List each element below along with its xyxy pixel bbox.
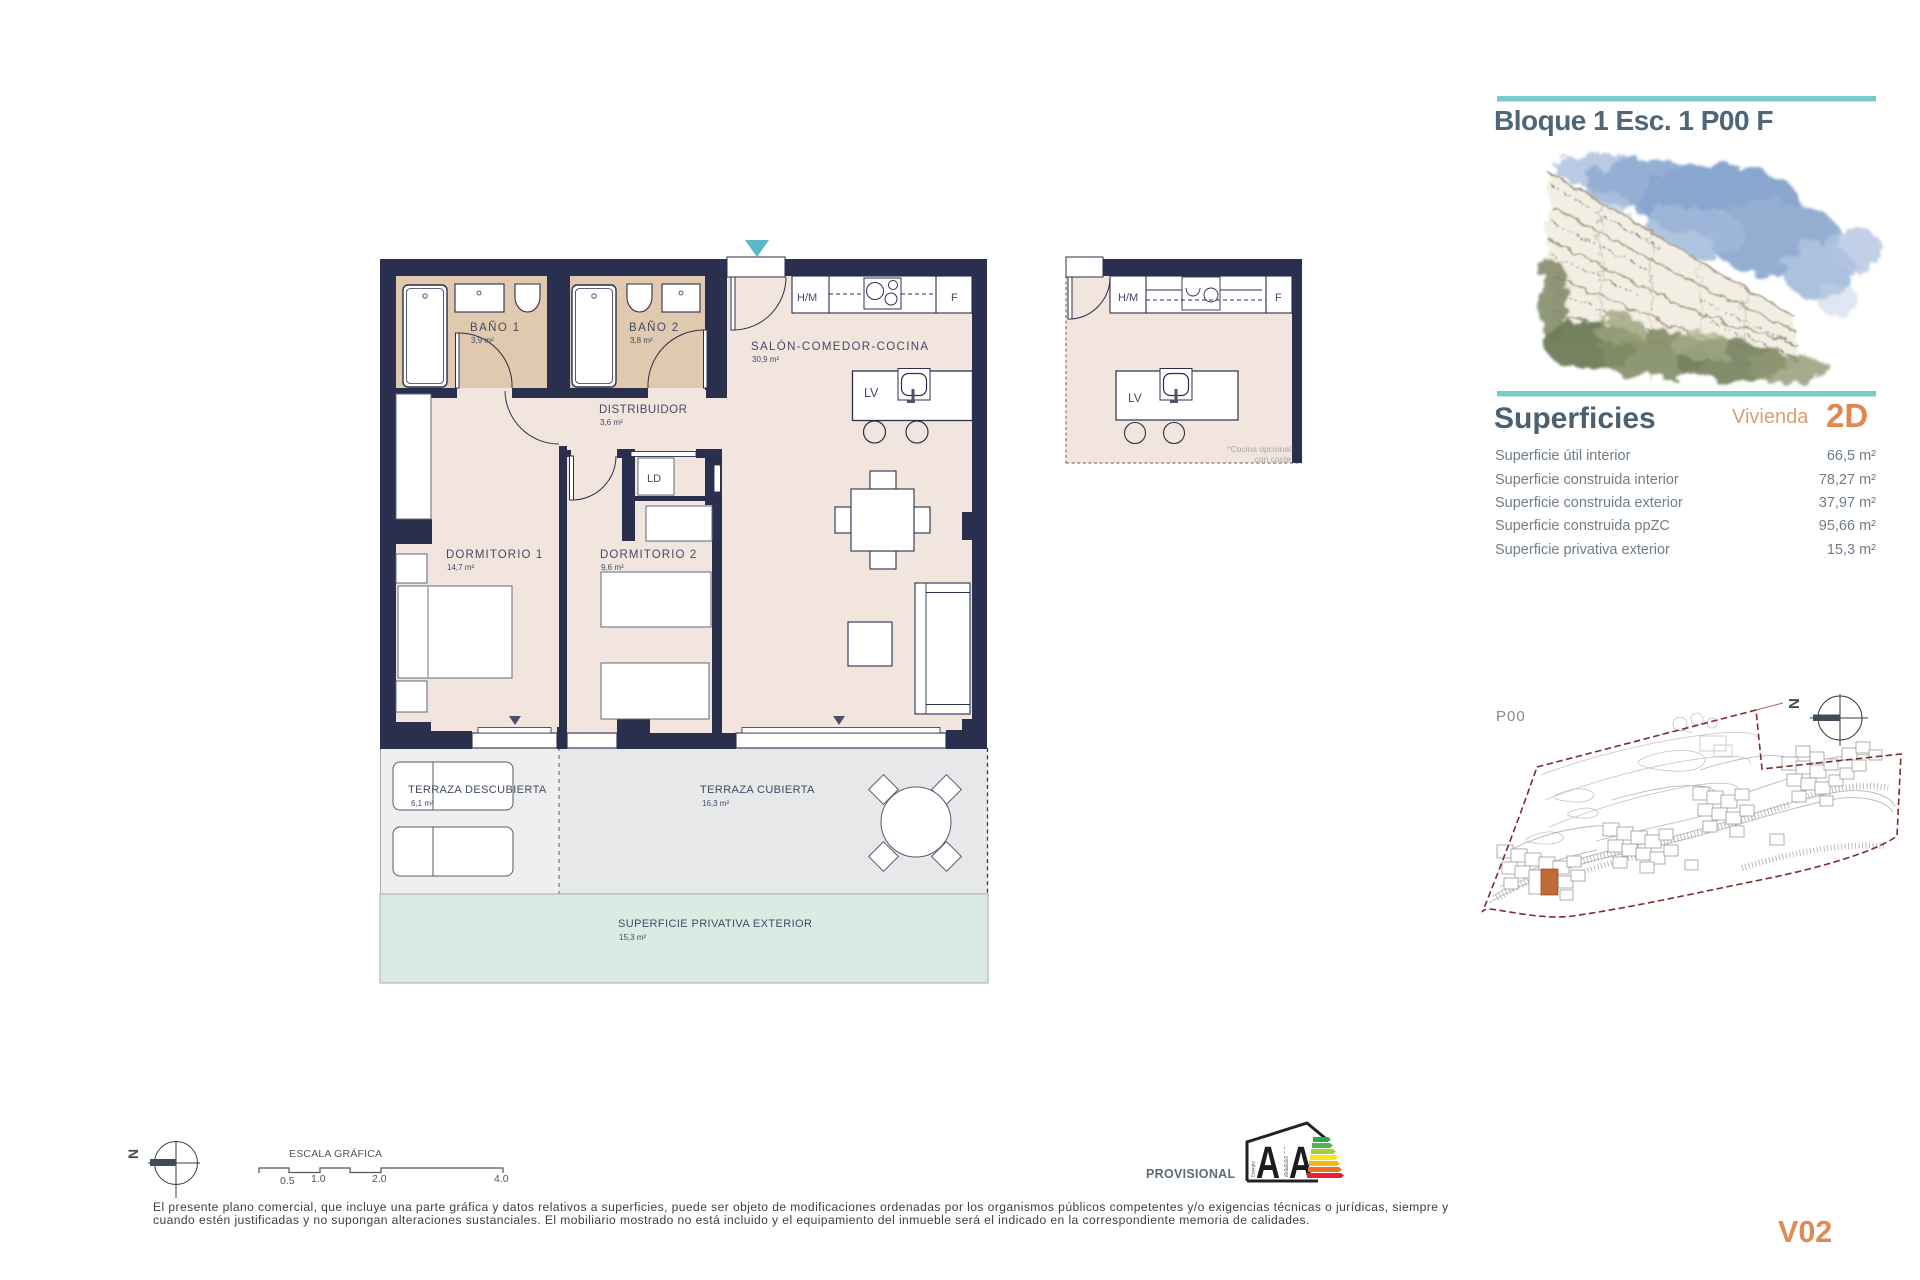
svg-text:A: A bbox=[1256, 1138, 1280, 1188]
svg-text:1.0: 1.0 bbox=[311, 1173, 326, 1185]
svg-text:LV: LV bbox=[1128, 391, 1142, 405]
svg-text:66,5 m²: 66,5 m² bbox=[1827, 448, 1876, 464]
svg-text:BAÑO 1: BAÑO 1 bbox=[470, 321, 521, 334]
svg-text:F: F bbox=[1275, 292, 1282, 304]
svg-text:N: N bbox=[1786, 698, 1803, 709]
svg-text:DORMITORIO 1: DORMITORIO 1 bbox=[446, 549, 543, 561]
svg-text:TERRAZA CUBIERTA: TERRAZA CUBIERTA bbox=[700, 784, 815, 796]
svg-text:Vivienda: Vivienda bbox=[1732, 406, 1809, 428]
svg-text:LD: LD bbox=[647, 473, 661, 485]
svg-text:H/M: H/M bbox=[797, 292, 817, 304]
svg-text:Superficies: Superficies bbox=[1494, 402, 1656, 435]
svg-text:3,8 m²: 3,8 m² bbox=[630, 336, 653, 345]
svg-text:H/M: H/M bbox=[1118, 292, 1138, 304]
svg-text:El presente plano comercial, q: El presente plano comercial, que incluye… bbox=[153, 1200, 1449, 1214]
svg-text:2.0: 2.0 bbox=[372, 1173, 387, 1185]
svg-text:Energía: Energía bbox=[1251, 1161, 1256, 1177]
svg-text:Superficie privativa exterior: Superficie privativa exterior bbox=[1495, 542, 1670, 558]
svg-text:15,3 m²: 15,3 m² bbox=[1827, 542, 1876, 558]
svg-text:DORMITORIO 2: DORMITORIO 2 bbox=[600, 549, 697, 561]
svg-text:P00: P00 bbox=[1496, 708, 1526, 725]
svg-text:BAÑO 2: BAÑO 2 bbox=[629, 321, 680, 334]
svg-text:Superficie útil interior: Superficie útil interior bbox=[1495, 448, 1631, 464]
svg-text:0.5: 0.5 bbox=[280, 1175, 295, 1187]
svg-text:2D: 2D bbox=[1826, 397, 1868, 434]
svg-text:cuando estén justificadas y no: cuando estén justificadas y no supongan … bbox=[153, 1213, 1310, 1227]
svg-text:Superficie construida interior: Superficie construida interior bbox=[1495, 472, 1679, 488]
svg-text:PROVISIONAL: PROVISIONAL bbox=[1146, 1167, 1235, 1181]
svg-text:*Cocina opcional: *Cocina opcional bbox=[1227, 444, 1291, 454]
svg-text:30,9 m²: 30,9 m² bbox=[752, 355, 779, 364]
svg-text:3,6 m²: 3,6 m² bbox=[600, 418, 623, 427]
svg-text:Superficie construida ppZC: Superficie construida ppZC bbox=[1495, 518, 1670, 534]
svg-text:Bloque 1 Esc. 1 P00 F: Bloque 1 Esc. 1 P00 F bbox=[1494, 105, 1773, 136]
svg-text:N: N bbox=[125, 1149, 141, 1159]
svg-text:Emisiones: Emisiones bbox=[1284, 1155, 1289, 1177]
svg-text:con coste: con coste bbox=[1255, 454, 1292, 464]
svg-text:15,3 m²: 15,3 m² bbox=[619, 933, 646, 942]
svg-text:78,27 m²: 78,27 m² bbox=[1819, 472, 1876, 488]
svg-text:14,7 m²: 14,7 m² bbox=[447, 563, 474, 572]
svg-text:LV: LV bbox=[864, 386, 879, 400]
svg-text:16,3 m²: 16,3 m² bbox=[702, 799, 729, 808]
svg-text:3,9 m²: 3,9 m² bbox=[471, 336, 494, 345]
svg-text:4.0: 4.0 bbox=[494, 1173, 509, 1185]
svg-text:TERRAZA DESCUBIERTA: TERRAZA DESCUBIERTA bbox=[408, 784, 547, 796]
svg-text:F: F bbox=[951, 292, 958, 304]
svg-text:DISTRIBUIDOR: DISTRIBUIDOR bbox=[599, 404, 687, 416]
svg-text:Superficie construida exterior: Superficie construida exterior bbox=[1495, 495, 1683, 511]
svg-text:SALÓN-COMEDOR-COCINA: SALÓN-COMEDOR-COCINA bbox=[751, 340, 929, 353]
svg-text:9,6 m²: 9,6 m² bbox=[601, 563, 624, 572]
svg-text:V02: V02 bbox=[1778, 1215, 1832, 1249]
svg-text:95,66 m²: 95,66 m² bbox=[1819, 518, 1876, 534]
svg-text:37,97 m²: 37,97 m² bbox=[1819, 495, 1876, 511]
svg-text:SUPERFICIE PRIVATIVA EXTERIOR: SUPERFICIE PRIVATIVA EXTERIOR bbox=[618, 918, 812, 930]
svg-text:6,1 m²: 6,1 m² bbox=[411, 799, 434, 808]
svg-text:ESCALA GRÁFICA: ESCALA GRÁFICA bbox=[289, 1147, 382, 1160]
